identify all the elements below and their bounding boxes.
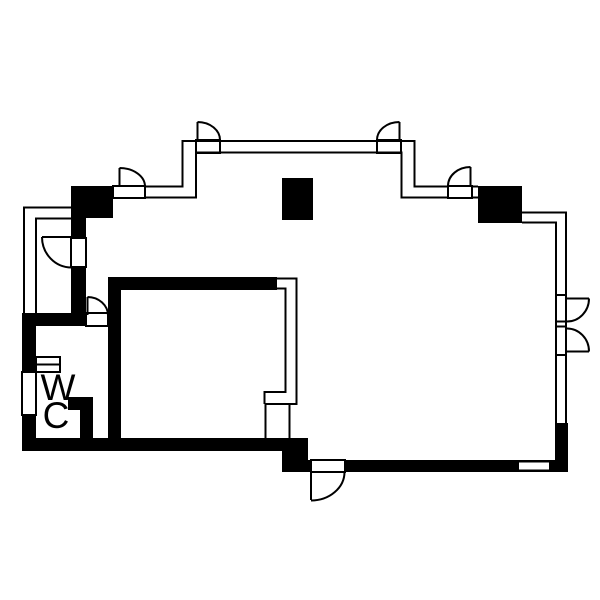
upper-left-door-frame bbox=[113, 186, 145, 198]
floor-plan-page: W C bbox=[0, 0, 600, 600]
wall-corner-block-right bbox=[478, 186, 522, 223]
wall-corner-block-left bbox=[71, 186, 113, 218]
upper-right-door-frame bbox=[448, 186, 472, 198]
wall-right-lower bbox=[555, 423, 568, 472]
wc-window bbox=[22, 372, 36, 415]
floor-plan: W C bbox=[0, 0, 600, 600]
wall-left-lower bbox=[71, 267, 86, 313]
wall-bottom-step bbox=[282, 438, 308, 472]
wall-wc-partition-column bbox=[80, 410, 93, 440]
wall-innerroom-top bbox=[108, 277, 277, 290]
balcony-door-opening bbox=[71, 238, 86, 267]
wc-label-line2: C bbox=[43, 395, 70, 436]
bottom-window bbox=[518, 462, 550, 471]
wc-door-opening bbox=[86, 313, 108, 326]
exit-door-opening bbox=[311, 460, 345, 472]
wall-bottom-left bbox=[22, 438, 282, 451]
column-pillar bbox=[282, 178, 313, 220]
plan-background bbox=[0, 0, 600, 600]
wall-left-upper bbox=[71, 218, 86, 239]
wall-innerroom-left bbox=[108, 277, 121, 438]
